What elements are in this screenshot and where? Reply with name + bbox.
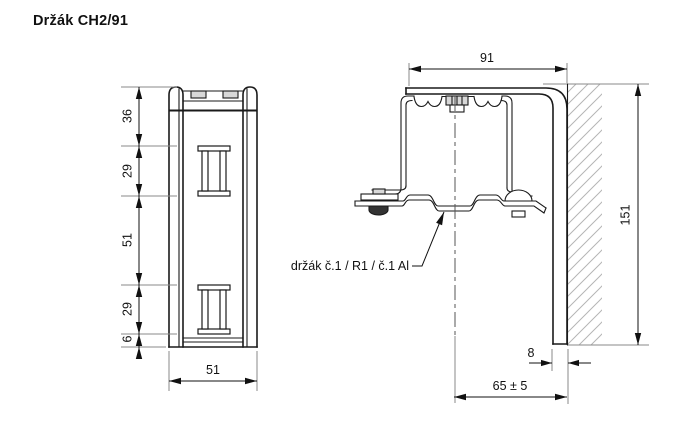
left-bolt-nut bbox=[369, 206, 388, 215]
callout-label: držák č.1 / R1 / č.1 Al bbox=[291, 259, 409, 273]
thickness-dim-label-8: 8 bbox=[528, 346, 535, 360]
left-bolt-cap bbox=[373, 189, 385, 194]
width-dim-label-91: 91 bbox=[480, 51, 494, 65]
left-bolt-washer bbox=[361, 194, 398, 200]
height-dim-label-36: 36 bbox=[120, 109, 134, 123]
channel-top-nut bbox=[450, 105, 464, 112]
wall-hatch bbox=[568, 84, 602, 345]
width-dim-label-51: 51 bbox=[206, 363, 220, 377]
height-dim-label-51: 51 bbox=[120, 233, 134, 247]
height-dim-label-6: 6 bbox=[120, 335, 134, 342]
offset-dim-label-65: 65 ± 5 bbox=[493, 379, 528, 393]
height-dim-label-29b: 29 bbox=[120, 302, 134, 316]
height-dim-label-151: 151 bbox=[618, 205, 632, 226]
drawing-title: Držák CH2/91 bbox=[33, 13, 128, 29]
technical-drawing: Držák CH2/91 bbox=[0, 0, 696, 446]
front-top-tab-left bbox=[191, 91, 206, 98]
height-dim-label-29a: 29 bbox=[120, 164, 134, 178]
front-top-tab-right bbox=[223, 91, 238, 98]
right-screw-nut bbox=[512, 211, 525, 217]
